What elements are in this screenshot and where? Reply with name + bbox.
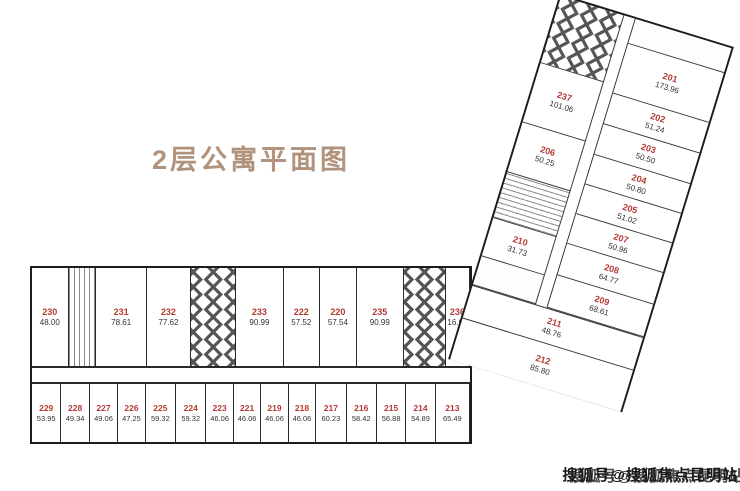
main-block: 230 48.00 231 78.61 232 77.62: [30, 266, 472, 444]
room-cell: 228 49.34: [61, 384, 89, 442]
room-number: 221: [240, 403, 254, 414]
room-area: 48.00: [40, 318, 60, 328]
room-area: 46.06: [265, 414, 284, 424]
room-cell: 219 46.06: [261, 384, 288, 442]
room-number: 213: [445, 403, 459, 414]
room-number: 232: [161, 307, 176, 318]
room-number: 233: [252, 307, 267, 318]
room-number: 235: [372, 307, 387, 318]
room-number: 231: [114, 307, 129, 318]
room-area: 60.23: [321, 414, 340, 424]
room-cell: 216 58.42: [347, 384, 377, 442]
room-cell: 215 56.88: [377, 384, 406, 442]
room-cell: [404, 268, 446, 368]
room-area: 57.52: [291, 318, 311, 328]
room-number: 228: [68, 403, 82, 414]
corridor: [32, 368, 470, 384]
room-cell: 226 47.25: [118, 384, 145, 442]
room-area: 78.61: [111, 318, 131, 328]
room-cell: 213 65.49: [436, 384, 470, 442]
room-number: 224: [184, 403, 198, 414]
wing-block: 237 101.06 206 50.25 210: [448, 0, 734, 412]
room-cell: 223 46.06: [206, 384, 233, 442]
room-cell: [69, 268, 97, 368]
room-area: 58.42: [352, 414, 371, 424]
room-cell: 235 90.99: [357, 268, 404, 368]
room-number: 215: [384, 403, 398, 414]
room-cell: 217 60.23: [316, 384, 346, 442]
room-area: 90.99: [249, 318, 269, 328]
room-area: 46.06: [238, 414, 257, 424]
room-number: 229: [39, 403, 53, 414]
room-cell: 230 48.00: [32, 268, 69, 368]
room-number: 214: [413, 403, 427, 414]
room-cell: 224 59.32: [176, 384, 206, 442]
room-area: 49.06: [94, 414, 113, 424]
room-number: 222: [294, 307, 309, 318]
room-number: 223: [213, 403, 227, 414]
room-area: 57.54: [328, 318, 348, 328]
floor-plan-page: 2层公寓平面图 230 48.00 231 78.61: [0, 0, 740, 491]
room-cell: 232 77.62: [147, 268, 191, 368]
room-cell: 218 46.06: [289, 384, 316, 442]
room-number: 220: [330, 307, 345, 318]
page-title: 2层公寓平面图: [152, 138, 350, 177]
room-area: 49.34: [66, 414, 85, 424]
room-area: 59.32: [151, 414, 170, 424]
room-area: 90.99: [370, 318, 390, 328]
room-cell: 233 90.99: [236, 268, 283, 368]
room-cell: 227 49.06: [90, 384, 118, 442]
room-area: 56.88: [382, 414, 401, 424]
room-number: 217: [324, 403, 338, 414]
room-cell: [191, 268, 236, 368]
watermark: 搜狐号@搜狐焦点昆明站: [562, 464, 738, 485]
room-number: 225: [153, 403, 167, 414]
room-area: 59.32: [181, 414, 200, 424]
room-number: 219: [267, 403, 281, 414]
room-area: 46.06: [210, 414, 229, 424]
room-number: 216: [354, 403, 368, 414]
room-cell: 222 57.52: [284, 268, 321, 368]
room-area: 46.06: [293, 414, 312, 424]
room-area: 54.89: [411, 414, 430, 424]
room-cell: 214 54.89: [406, 384, 435, 442]
room-area: 53.95: [37, 414, 56, 424]
main-lower-row: 229 53.95 228 49.34 227 49.06 226 47.25: [32, 384, 470, 442]
room-cell: 231 78.61: [96, 268, 147, 368]
room-cell: 225 59.32: [146, 384, 176, 442]
room-area: 47.25: [122, 414, 141, 424]
room-area: 77.62: [158, 318, 178, 328]
room-cell: 229 53.95: [32, 384, 61, 442]
room-number: 227: [96, 403, 110, 414]
room-area: 65.49: [443, 414, 462, 424]
room-number: 230: [42, 307, 57, 318]
wing-top: 237 101.06 206 50.25 210: [473, 0, 732, 337]
room-number: 226: [124, 403, 138, 414]
main-upper-row: 230 48.00 231 78.61 232 77.62: [32, 268, 470, 368]
room-cell: 220 57.54: [320, 268, 357, 368]
room-number: 218: [295, 403, 309, 414]
room-cell: 221 46.06: [234, 384, 261, 442]
